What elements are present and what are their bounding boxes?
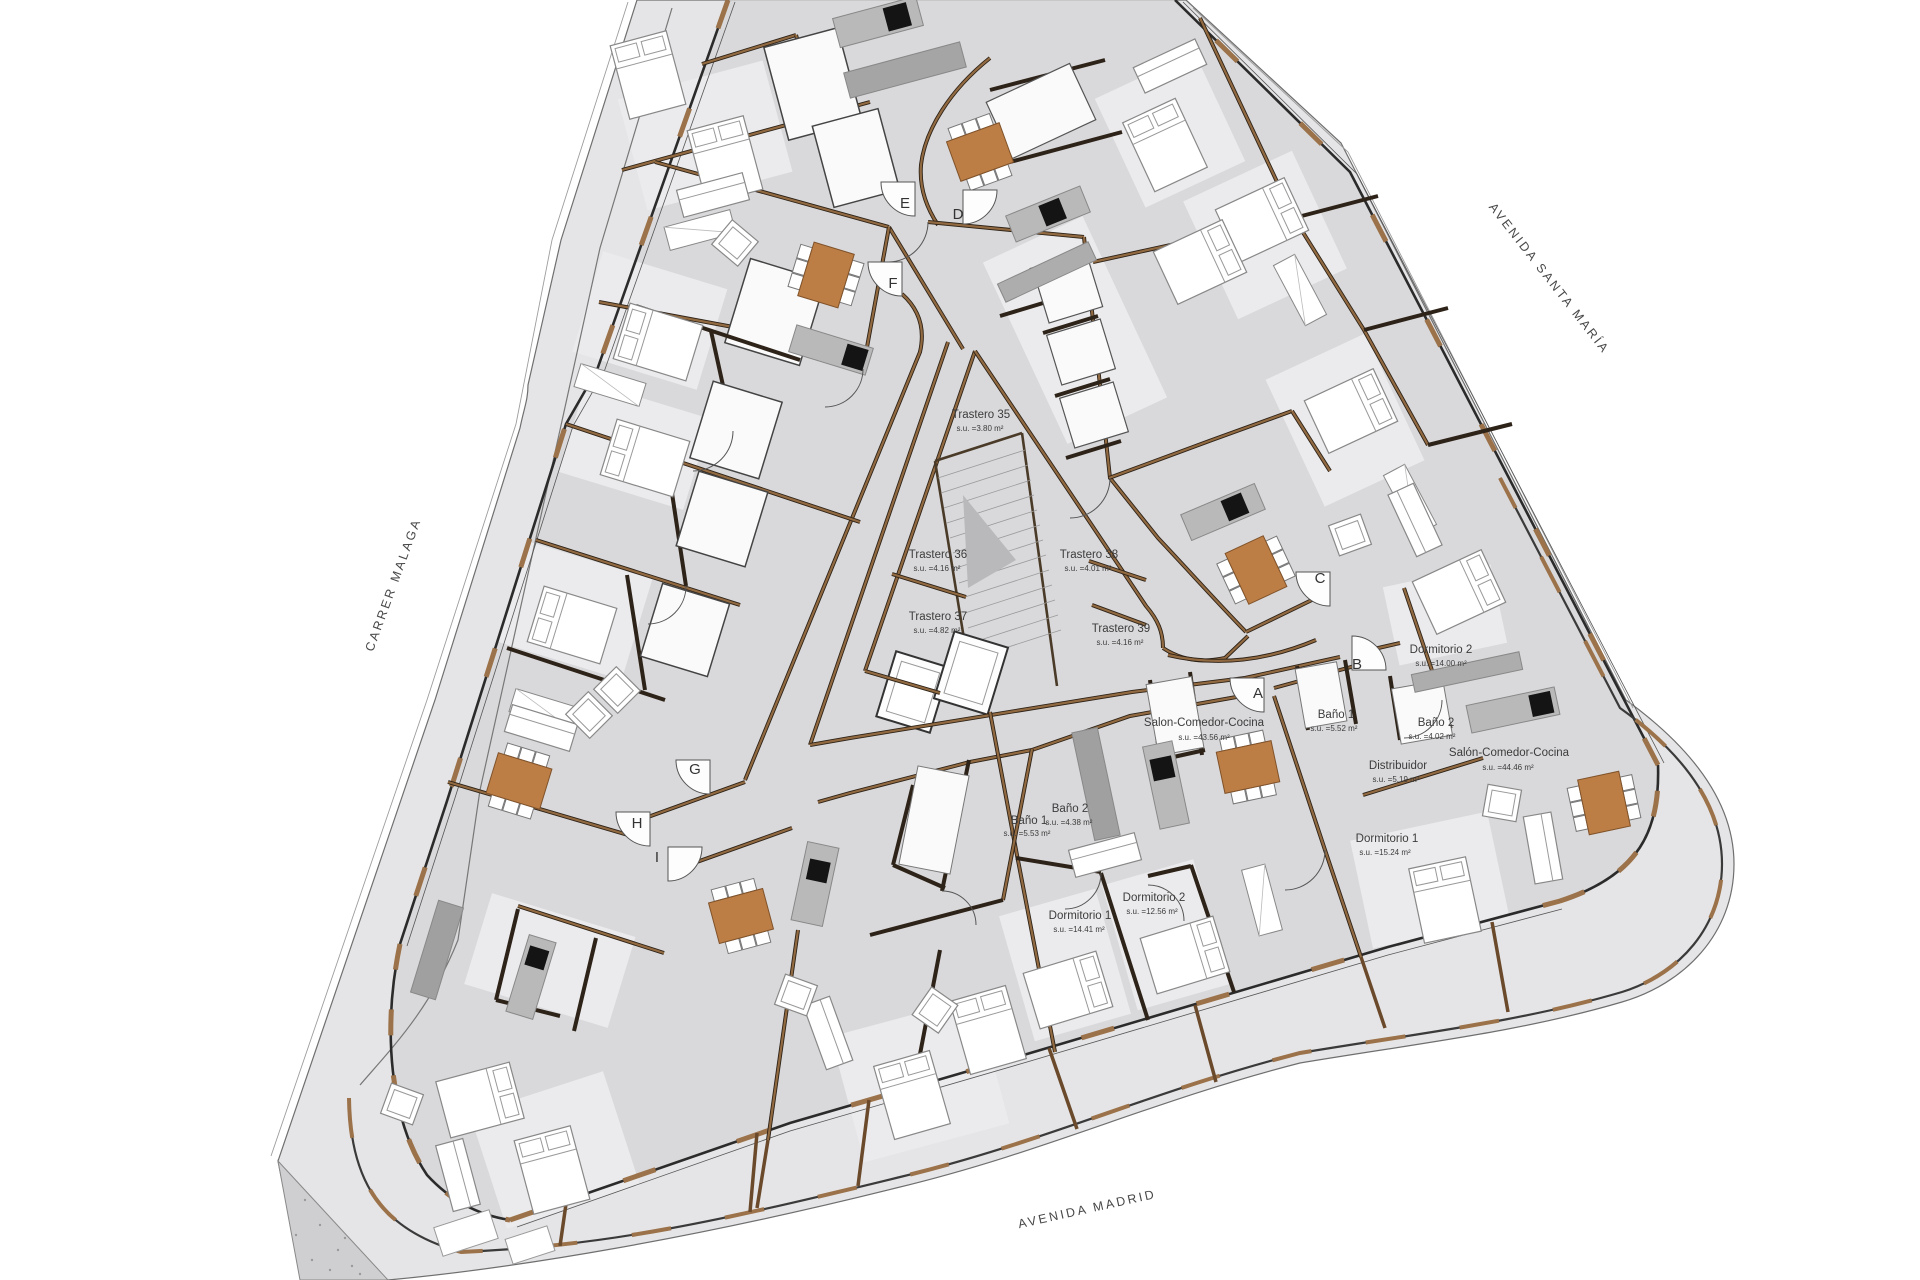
svg-text:Baño 1: Baño 1 [1011,815,1047,827]
svg-text:s.u. =4.16 m²: s.u. =4.16 m² [914,564,961,573]
svg-text:s.u. =12.56 m²: s.u. =12.56 m² [1126,907,1178,916]
svg-text:s.u. =5.19 m²: s.u. =5.19 m² [1373,775,1420,784]
svg-text:s.u. =14.00 m²: s.u. =14.00 m² [1415,659,1467,668]
svg-text:Trastero 35: Trastero 35 [952,409,1010,421]
svg-text:Dormitorio 2: Dormitorio 2 [1410,644,1473,656]
svg-text:s.u. =43.56 m²: s.u. =43.56 m² [1178,733,1230,742]
svg-text:D: D [953,206,964,223]
svg-text:s.u. =4.02 m²: s.u. =4.02 m² [1409,732,1456,741]
svg-text:H: H [632,815,643,832]
svg-text:Baño 1: Baño 1 [1318,709,1354,721]
svg-text:E: E [900,195,910,212]
svg-text:Trastero 39: Trastero 39 [1092,623,1150,635]
svg-text:F: F [888,275,897,292]
svg-text:s.u. =44.46 m²: s.u. =44.46 m² [1482,763,1534,772]
svg-text:Dormitorio 2: Dormitorio 2 [1123,892,1186,904]
svg-text:Dormitorio 1: Dormitorio 1 [1356,833,1419,845]
svg-text:Trastero 38: Trastero 38 [1060,549,1118,561]
svg-text:C: C [1315,570,1326,587]
svg-text:s.u. =5.53 m²: s.u. =5.53 m² [1004,829,1051,838]
svg-text:Trastero 36: Trastero 36 [909,549,967,561]
svg-text:A: A [1253,685,1263,702]
svg-text:Baño 2: Baño 2 [1418,717,1454,729]
svg-text:Distribuidor: Distribuidor [1369,760,1427,772]
svg-text:G: G [689,761,701,778]
svg-text:s.u. =5.52 m²: s.u. =5.52 m² [1311,724,1358,733]
svg-text:s.u. =15.24 m²: s.u. =15.24 m² [1359,848,1411,857]
svg-text:s.u. =4.82 m²: s.u. =4.82 m² [914,626,961,635]
svg-text:Baño 2: Baño 2 [1052,803,1088,815]
svg-text:s.u. =4.38 m²: s.u. =4.38 m² [1046,818,1093,827]
svg-text:Dormitorio 1: Dormitorio 1 [1049,910,1112,922]
svg-text:s.u. =4.01 m²: s.u. =4.01 m² [1065,564,1112,573]
svg-text:s.u. =14.41 m²: s.u. =14.41 m² [1053,925,1105,934]
svg-text:I: I [655,849,659,866]
svg-text:Salon-Comedor-Cocina: Salon-Comedor-Cocina [1144,717,1265,729]
svg-text:s.u. =4.16 m²: s.u. =4.16 m² [1097,638,1144,647]
svg-text:Trastero 37: Trastero 37 [909,611,967,623]
svg-text:s.u. =3.80 m²: s.u. =3.80 m² [957,424,1004,433]
svg-text:B: B [1352,656,1362,673]
svg-text:Salón-Comedor-Cocina: Salón-Comedor-Cocina [1449,747,1570,759]
